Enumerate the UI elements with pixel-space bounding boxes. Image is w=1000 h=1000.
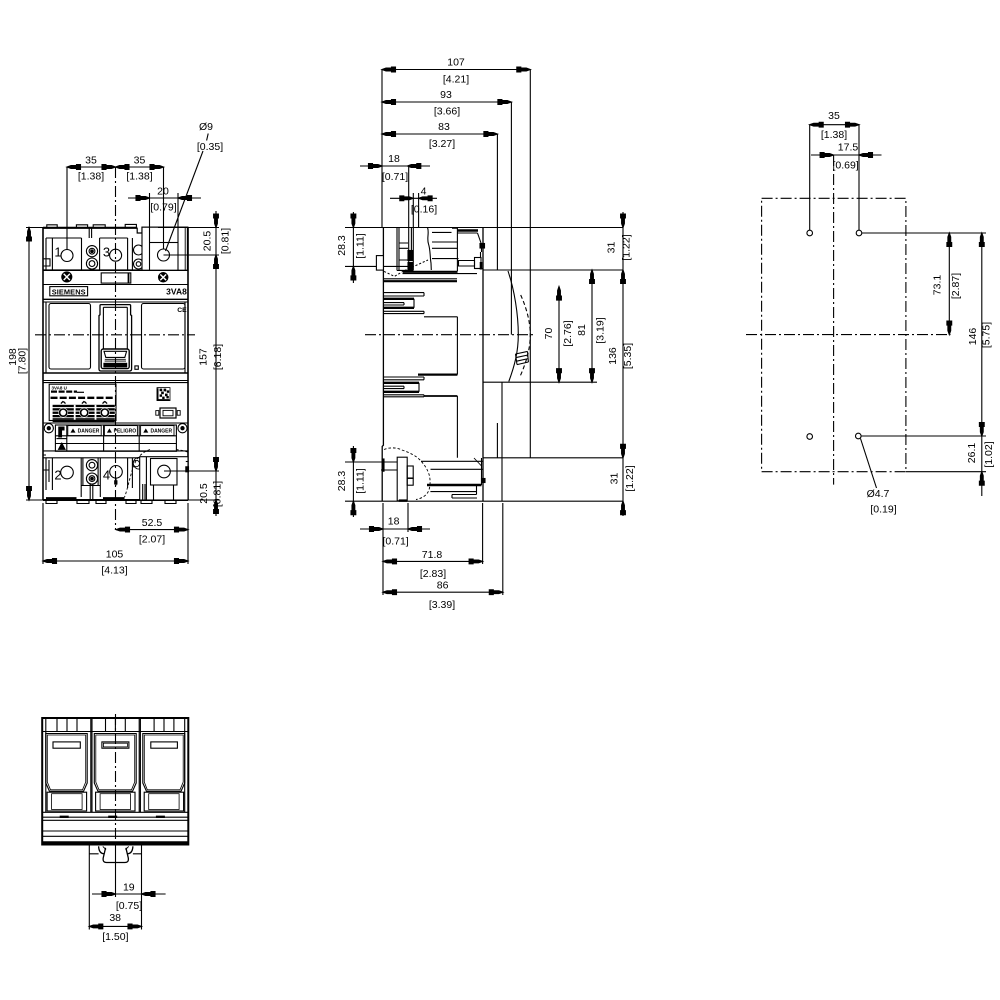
svg-text:PELIGRO: PELIGRO [114, 429, 137, 435]
svg-text:20.5: 20.5 [198, 483, 210, 504]
svg-text:[0.81]: [0.81] [220, 228, 232, 254]
svg-text:[1.22]: [1.22] [624, 465, 636, 491]
svg-text:1: 1 [54, 245, 61, 260]
svg-text:[2.76]: [2.76] [562, 320, 574, 346]
svg-text:70: 70 [543, 328, 555, 340]
svg-text:3: 3 [103, 245, 110, 260]
svg-text:3VA8 U: 3VA8 U [52, 386, 67, 391]
svg-text:[4.13]: [4.13] [101, 565, 127, 577]
svg-text:[0.16]: [0.16] [411, 204, 437, 216]
svg-text:73.1: 73.1 [932, 275, 944, 296]
svg-text:[4.21]: [4.21] [443, 74, 469, 86]
svg-text:[0.71]: [0.71] [382, 536, 408, 548]
svg-text:28.3: 28.3 [336, 235, 348, 256]
svg-text:35: 35 [828, 110, 840, 122]
svg-text:[1.38]: [1.38] [821, 129, 847, 141]
svg-text:[3.19]: [3.19] [595, 317, 607, 343]
svg-text:[3.27]: [3.27] [429, 138, 455, 150]
svg-text:[0.79]: [0.79] [150, 202, 176, 214]
svg-text:[1.50]: [1.50] [102, 931, 128, 943]
svg-text:52.5: 52.5 [142, 517, 163, 529]
svg-text:19: 19 [123, 882, 135, 894]
svg-text:[5.75]: [5.75] [981, 322, 993, 348]
svg-text:31: 31 [609, 473, 621, 485]
svg-text:18: 18 [388, 516, 400, 528]
svg-text:157: 157 [198, 348, 210, 366]
svg-text:[1.02]: [1.02] [983, 441, 995, 467]
svg-text:107: 107 [447, 57, 465, 69]
svg-text:28.3: 28.3 [336, 471, 348, 492]
svg-text:4: 4 [103, 468, 110, 483]
svg-text:DANGER: DANGER [78, 429, 100, 435]
svg-text:Ø4.7: Ø4.7 [867, 488, 890, 500]
svg-text:[7.80]: [7.80] [17, 348, 29, 374]
svg-text:18: 18 [388, 153, 400, 165]
svg-text:20.5: 20.5 [202, 231, 214, 252]
svg-text:[3.39]: [3.39] [429, 599, 455, 611]
svg-text:3VA8: 3VA8 [166, 287, 187, 297]
svg-text:20: 20 [157, 186, 169, 198]
svg-text:SIEMENS: SIEMENS [52, 287, 86, 296]
svg-text:[1.11]: [1.11] [355, 468, 367, 494]
svg-text:83: 83 [438, 121, 450, 133]
svg-text:[0.75]: [0.75] [116, 900, 142, 912]
svg-text:[1.11]: [1.11] [355, 233, 367, 259]
svg-text:4: 4 [421, 186, 427, 198]
svg-text:[6.18]: [6.18] [212, 344, 224, 370]
svg-text:2: 2 [54, 468, 61, 483]
svg-text:31: 31 [606, 242, 618, 254]
svg-text:35: 35 [134, 155, 146, 167]
svg-text:Ø9: Ø9 [199, 121, 213, 133]
svg-text:[0.35]: [0.35] [197, 141, 223, 153]
svg-text:[1.22]: [1.22] [621, 234, 633, 260]
svg-text:DANGER: DANGER [150, 429, 172, 435]
svg-text:CE: CE [177, 307, 187, 314]
svg-text:93: 93 [440, 89, 452, 101]
svg-text:[2.83]: [2.83] [420, 568, 446, 580]
svg-text:35: 35 [85, 155, 97, 167]
svg-text:86: 86 [437, 580, 449, 592]
svg-text:136: 136 [607, 347, 619, 365]
svg-text:[2.07]: [2.07] [139, 534, 165, 546]
svg-text:38: 38 [109, 912, 121, 924]
svg-text:[5.35]: [5.35] [622, 343, 634, 369]
svg-text:[2.87]: [2.87] [950, 273, 962, 299]
svg-text:105: 105 [106, 549, 124, 561]
svg-text:[0.19]: [0.19] [870, 504, 896, 516]
svg-text:81: 81 [576, 324, 588, 336]
svg-text:[0.69]: [0.69] [832, 160, 858, 172]
svg-text:[3.66]: [3.66] [434, 106, 460, 118]
svg-text:146: 146 [967, 328, 979, 346]
svg-text:[1.38]: [1.38] [78, 171, 104, 183]
svg-text:17.5: 17.5 [838, 142, 859, 154]
svg-text:[1.38]: [1.38] [126, 171, 152, 183]
svg-text:26.1: 26.1 [966, 443, 978, 464]
svg-text:[0.81]: [0.81] [212, 481, 224, 507]
svg-text:71.8: 71.8 [422, 549, 443, 561]
svg-text:[0.71]: [0.71] [382, 171, 408, 183]
